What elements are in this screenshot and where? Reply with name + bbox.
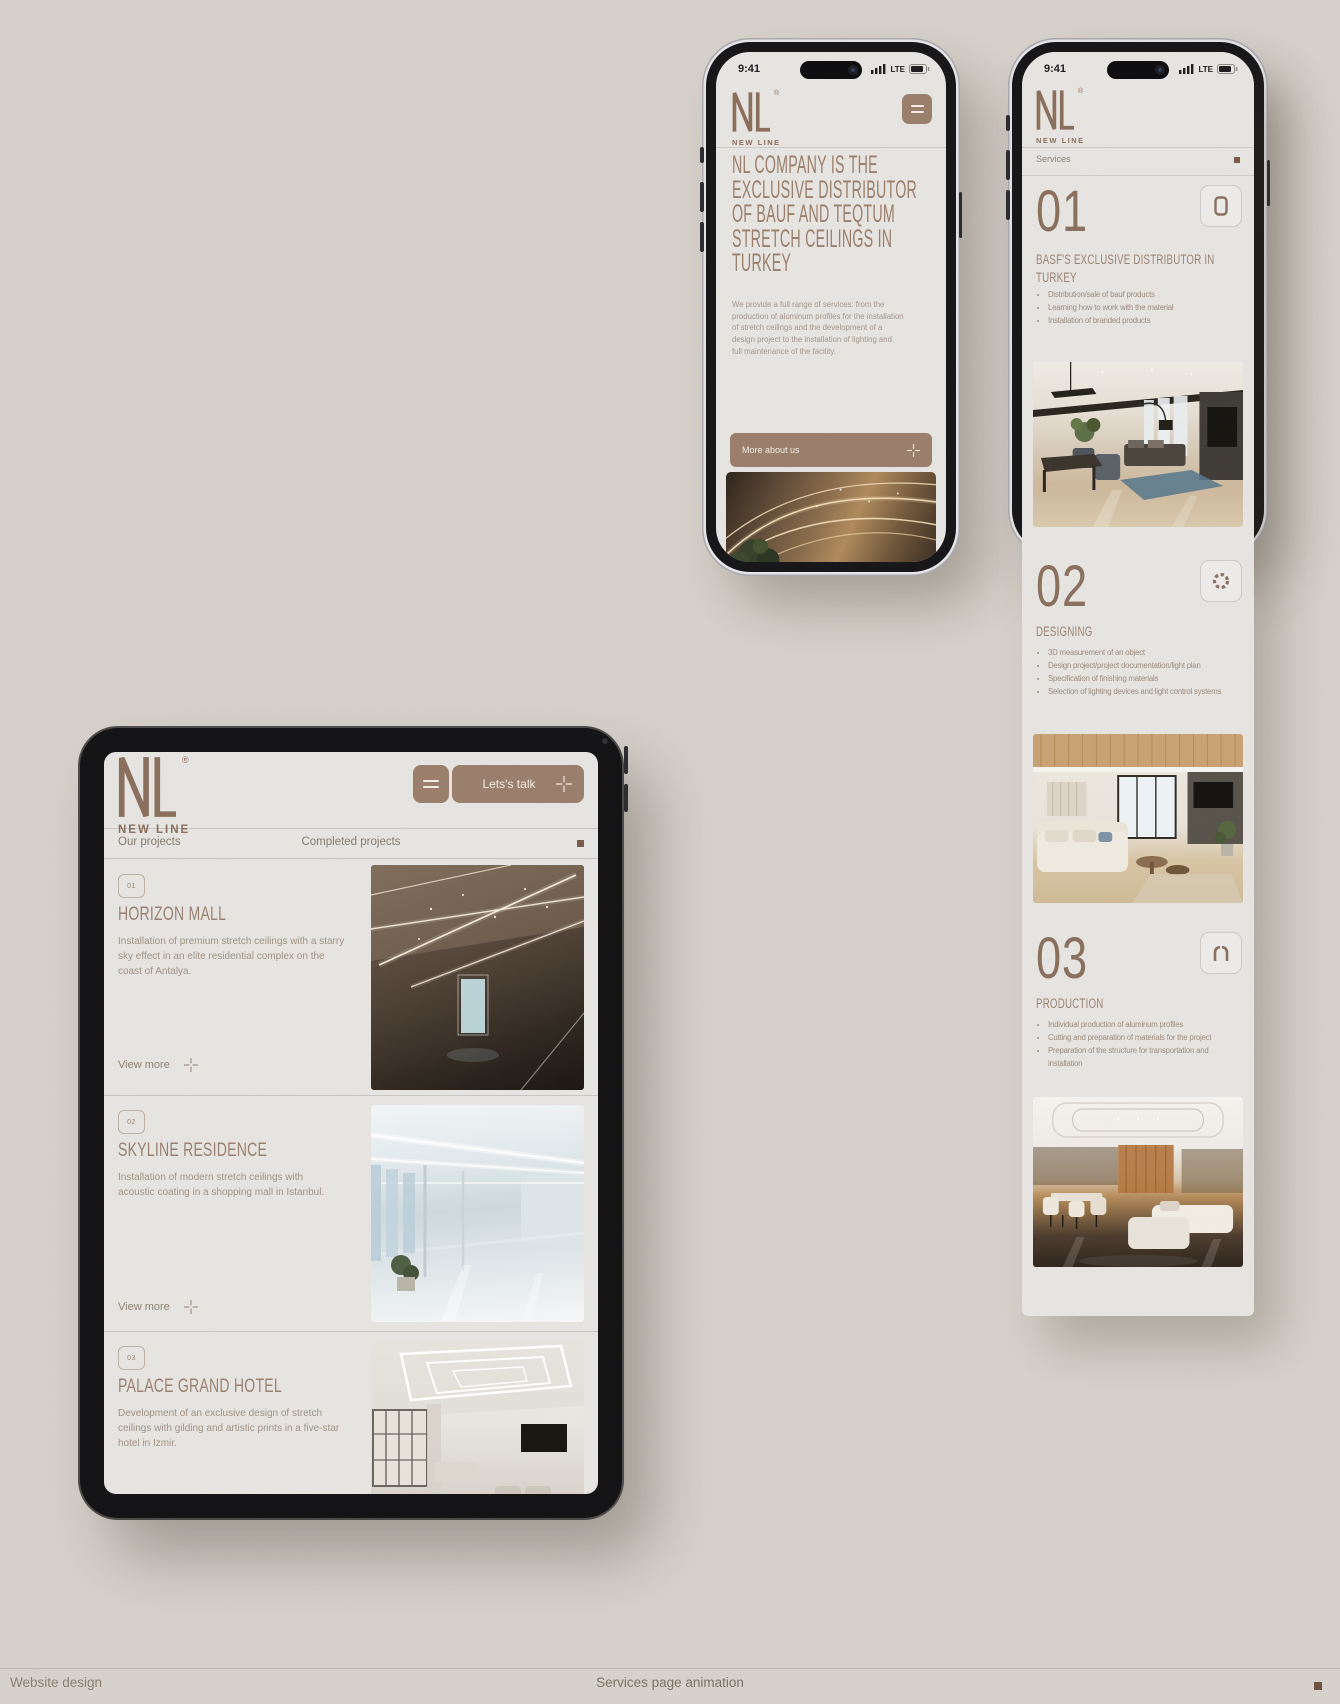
view-more-label: View more — [118, 1059, 170, 1071]
tablet-camera-icon — [602, 738, 608, 744]
signal-icon — [871, 64, 886, 74]
section-number: 03 — [1036, 930, 1088, 988]
interior-art — [371, 865, 584, 1090]
section-title: BASF'S EXCLUSIVE DISTRIBUTOR IN TURKEY — [1036, 251, 1223, 286]
hero-heading: NL COMPANY IS THE EXCLUSIVE DISTRIBUTOR … — [732, 153, 932, 276]
section-number: 02 — [1036, 558, 1088, 616]
footer-left-label: Website design — [10, 1675, 102, 1690]
project-badge: 03 — [118, 1346, 145, 1370]
bullet-item: Individual production of aluminum profil… — [1048, 1019, 1246, 1032]
project-photo — [371, 1340, 584, 1494]
interior-art — [371, 1105, 584, 1322]
footer-square-marker — [1314, 1682, 1322, 1690]
interior-art — [1033, 362, 1243, 527]
menu-button[interactable] — [902, 94, 932, 124]
curved-ceiling-photo — [726, 472, 936, 562]
section-icon-button[interactable] — [1200, 932, 1242, 974]
project-description: Installation of modern stretch ceilings … — [118, 1170, 330, 1200]
power-button — [959, 192, 963, 238]
tablet-screen: ® NEW LINE Lets's talk Our projects Comp… — [104, 752, 598, 1494]
interior-art — [1033, 734, 1243, 903]
gear-icon — [1210, 570, 1232, 592]
services-breadcrumb[interactable]: Services — [1036, 154, 1071, 164]
volume-up-button — [700, 182, 704, 212]
view-more-link[interactable]: View more — [118, 1300, 198, 1314]
cta-label: Lets's talk — [483, 777, 536, 791]
living-room-photo-2 — [1033, 734, 1243, 903]
divider — [716, 147, 946, 148]
section-bullet-list: Individual production of aluminum profil… — [1038, 1019, 1246, 1070]
hero-paragraph: We provide a full range of services: fro… — [732, 299, 904, 357]
mute-switch — [700, 147, 704, 163]
network-label: LTE — [1198, 65, 1213, 74]
bullet-item: 3D measurement of an object — [1048, 647, 1246, 660]
phone1-screen: 9:41 LTE ® NEW LINE NL COMPANY IS — [716, 52, 946, 562]
status-time: 9:41 — [1044, 63, 1066, 75]
footer-divider — [0, 1668, 1340, 1669]
tablet-power-button — [624, 746, 628, 774]
view-more-label: View more — [118, 1301, 170, 1313]
project-photo — [371, 1105, 584, 1322]
project-photo — [371, 865, 584, 1090]
divider — [1022, 175, 1254, 176]
hamburger-icon — [423, 780, 439, 782]
living-room-photo-1 — [1033, 362, 1243, 527]
bullet-item: Selection of lighting devices and light … — [1048, 686, 1246, 699]
section-icon-button[interactable] — [1200, 185, 1242, 227]
section-title: DESIGNING — [1036, 623, 1223, 641]
plus-icon — [184, 1058, 198, 1072]
mute-switch — [1006, 115, 1010, 131]
project-row: 01 HORIZON MALL Installation of premium … — [104, 860, 598, 1096]
section-number: 01 — [1036, 183, 1088, 241]
bullet-item: Cutting and preparation of materials for… — [1048, 1032, 1246, 1045]
footer-center-label: Services page animation — [596, 1675, 744, 1690]
bullet-item: Installation of branded products — [1048, 315, 1246, 328]
project-title: PALACE GRAND HOTEL — [118, 1376, 282, 1398]
plus-icon — [184, 1300, 198, 1314]
tab-completed-projects[interactable]: Completed projects — [301, 836, 400, 848]
project-description: Installation of premium stretch ceilings… — [118, 934, 348, 979]
phone2-page: 9:41 LTE ® NEW LINE Services 01 B — [1022, 52, 1254, 1316]
divider — [1022, 147, 1254, 148]
bullet-item: Distribution/sale of bauf products — [1048, 289, 1246, 302]
volume-down-button — [1006, 190, 1010, 220]
volume-up-button — [1006, 150, 1010, 180]
project-badge: 02 — [118, 1110, 145, 1134]
divider — [104, 828, 598, 829]
power-button — [1267, 160, 1271, 206]
bullet-item: Design project/project documentation/lig… — [1048, 660, 1246, 673]
section-bullet-list: Distribution/sale of bauf products Learn… — [1038, 289, 1246, 328]
signal-icon — [1179, 64, 1194, 74]
project-description: Development of an exclusive design of st… — [118, 1406, 348, 1451]
nav-square-marker — [577, 840, 584, 847]
section-bullet-list: 3D measurement of an object Design proje… — [1038, 647, 1246, 698]
project-title: SKYLINE RESIDENCE — [118, 1140, 267, 1162]
brand-wordmark: NEW LINE — [732, 138, 781, 147]
registered-mark: ® — [774, 90, 779, 97]
tablet-volume-button — [624, 784, 628, 812]
plus-icon — [907, 444, 920, 457]
smartphone-icon — [1211, 195, 1231, 217]
nl-logo-monogram — [1036, 90, 1074, 130]
registered-mark: ® — [182, 755, 189, 765]
nl-logo: ® NEW LINE — [1036, 90, 1085, 145]
nl-logo: ® NEW LINE — [118, 757, 190, 836]
plus-icon — [556, 776, 572, 792]
nl-logo: ® NEW LINE — [732, 92, 781, 147]
project-row: 03 PALACE GRAND HOTEL Development of an … — [104, 1332, 598, 1494]
nl-logo-monogram — [732, 92, 770, 132]
bullet-item: Learning how to work with the material — [1048, 302, 1246, 315]
menu-button[interactable] — [413, 765, 449, 803]
interior-art — [1033, 1097, 1243, 1267]
nav-square-marker — [1234, 157, 1240, 163]
ceiling-art — [726, 472, 936, 562]
tablet-mockup: ® NEW LINE Lets's talk Our projects Comp… — [80, 728, 622, 1518]
section-title: PRODUCTION — [1036, 995, 1223, 1013]
battery-icon — [909, 64, 930, 74]
more-about-us-button[interactable]: More about us — [730, 433, 932, 467]
project-title: HORIZON MALL — [118, 904, 226, 926]
battery-icon — [1217, 64, 1238, 74]
registered-mark: ® — [1078, 88, 1083, 95]
lets-talk-button[interactable]: Lets's talk — [452, 765, 584, 803]
tab-our-projects[interactable]: Our projects — [118, 836, 181, 848]
presentation-canvas: 9:41 LTE ® NEW LINE NL COMPANY IS — [0, 0, 1340, 1704]
project-row: 02 SKYLINE RESIDENCE Installation of mod… — [104, 1096, 598, 1332]
bullet-item: Preparation of the structure for transpo… — [1048, 1045, 1234, 1071]
volume-down-button — [700, 222, 704, 252]
arch-icon — [1210, 942, 1232, 964]
status-time: 9:41 — [738, 63, 760, 75]
status-bar: 9:41 LTE — [716, 62, 946, 78]
cta-label: More about us — [742, 445, 800, 455]
brand-wordmark: NEW LINE — [1036, 136, 1085, 145]
section-icon-button[interactable] — [1200, 560, 1242, 602]
status-bar: 9:41 LTE — [1022, 62, 1254, 78]
interior-art — [371, 1340, 584, 1494]
nl-logo-monogram — [118, 757, 176, 817]
bullet-item: Specification of finishing materials — [1048, 673, 1246, 686]
project-badge: 01 — [118, 874, 145, 898]
network-label: LTE — [890, 65, 905, 74]
divider — [104, 858, 598, 859]
brand-wordmark: NEW LINE — [118, 824, 190, 836]
hotel-lounge-photo — [1033, 1097, 1243, 1267]
hamburger-icon — [911, 105, 924, 107]
phone-mockup-1: 9:41 LTE ® NEW LINE NL COMPANY IS — [706, 42, 956, 572]
view-more-link[interactable]: View more — [118, 1058, 198, 1072]
